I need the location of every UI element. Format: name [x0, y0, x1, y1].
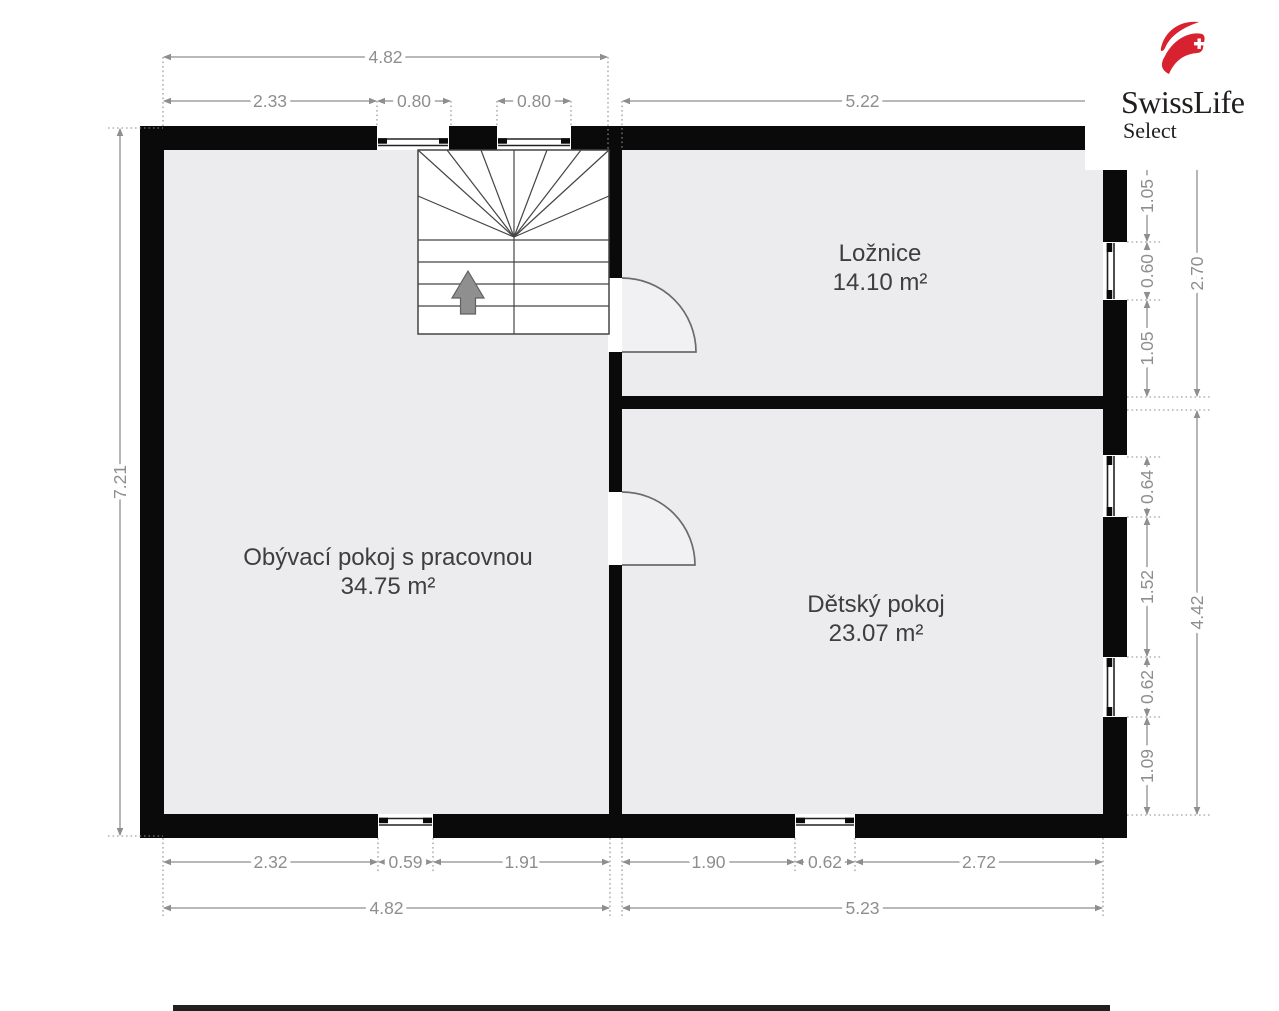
dimension-arrowhead [855, 859, 863, 866]
dimension-label: 0.60 [1137, 254, 1157, 288]
dimension-arrowhead [1194, 807, 1201, 815]
dimension-arrowhead [1194, 389, 1201, 397]
logo-sub-text: Select [1123, 118, 1177, 144]
dimension-arrowhead [497, 98, 505, 105]
dimension-label: 1.52 [1137, 570, 1157, 604]
dimension-label: 0.59 [388, 852, 422, 872]
swisslife-logo: SwissLife Select [1085, 0, 1279, 170]
wall [622, 396, 1103, 409]
wall [609, 565, 622, 814]
dimension-label: 2.33 [253, 91, 287, 111]
window-cap [1107, 658, 1113, 667]
dimension-arrowhead [1144, 657, 1151, 665]
window-cap [561, 138, 570, 144]
dimension-arrowhead [117, 828, 124, 836]
dimension-arrowhead [1144, 234, 1151, 242]
dimension-arrowhead [163, 98, 171, 105]
window-cap [796, 818, 805, 824]
dimension-arrowhead [425, 859, 433, 866]
dimension-arrowhead [1144, 292, 1151, 300]
dimension-label: 1.05 [1137, 179, 1157, 213]
dimension-label: 2.32 [253, 852, 287, 872]
dimension-arrowhead [1144, 517, 1151, 525]
window-opening [497, 126, 571, 150]
dimension-arrowhead [1194, 410, 1201, 418]
dimension-arrowhead [369, 98, 377, 105]
window-opening [1103, 455, 1127, 517]
swisslife-logo-icon [1155, 18, 1209, 80]
dimension-label: 0.62 [808, 852, 842, 872]
door-opening [608, 492, 623, 565]
floorplan-page: 4.822.330.800.805.227.211.050.601.050.64… [0, 0, 1279, 1011]
dimension-label: 5.22 [845, 91, 879, 111]
dimension-arrowhead [378, 859, 386, 866]
dimension-arrowhead [1144, 807, 1151, 815]
dimension-arrowhead [1144, 242, 1151, 250]
dimension-arrowhead [602, 859, 610, 866]
dimension-label: 1.90 [691, 852, 725, 872]
room-area: 14.10 m² [833, 269, 928, 296]
dimension-arrowhead [1144, 709, 1151, 717]
window-cap [423, 818, 432, 824]
room-name: Ložnice [839, 240, 922, 267]
dimension-label: 0.62 [1137, 670, 1157, 704]
window-cap [439, 138, 448, 144]
dimension-arrowhead [163, 859, 171, 866]
dimension-arrowhead [1095, 859, 1103, 866]
dimension-arrowhead [370, 859, 378, 866]
window-opening [1103, 657, 1127, 717]
dimension-label: 4.42 [1187, 595, 1207, 629]
window-opening [377, 126, 449, 150]
dimension-label: 0.64 [1137, 470, 1157, 504]
dimension-arrowhead [1095, 905, 1103, 912]
dimension-label: 4.82 [368, 47, 402, 67]
dimension-arrowhead [622, 905, 630, 912]
dimension-arrowhead [622, 98, 630, 105]
wall [609, 150, 622, 278]
dimension-arrowhead [163, 905, 171, 912]
dimension-arrowhead [602, 905, 610, 912]
dimension-label: 0.80 [517, 91, 551, 111]
dimension-label: 0.80 [397, 91, 431, 111]
dimension-arrowhead [1144, 509, 1151, 517]
dimension-arrowhead [1144, 457, 1151, 465]
room-name: Dětský pokoj [807, 591, 944, 618]
window-opening [1103, 242, 1127, 300]
room-name: Obývací pokoj s pracovnou [243, 544, 533, 571]
dimension-arrowhead [787, 859, 795, 866]
dimension-arrowhead [1144, 649, 1151, 657]
window-cap [379, 818, 388, 824]
floor [164, 150, 1103, 814]
dimension-label: 1.09 [1137, 749, 1157, 783]
dimension-arrowhead [377, 98, 385, 105]
window-cap [378, 138, 387, 144]
dimension-arrowhead [600, 54, 608, 61]
dimension-arrowhead [163, 54, 171, 61]
dimension-arrowhead [622, 859, 630, 866]
window-cap [1107, 707, 1113, 716]
dimension-arrowhead [443, 98, 451, 105]
window-cap [498, 138, 507, 144]
wall [140, 126, 164, 838]
dimension-label: 7.21 [110, 465, 130, 499]
door-opening [608, 278, 623, 352]
adjacent-plan-edge [173, 1005, 1110, 1011]
wall [140, 126, 1127, 150]
dimension-label: 4.82 [369, 898, 403, 918]
dimension-arrowhead [1144, 717, 1151, 725]
dimension-label: 2.70 [1187, 256, 1207, 290]
dimension-arrowhead [117, 128, 124, 136]
dimension-label: 2.72 [962, 852, 996, 872]
dimension-label: 5.23 [845, 898, 879, 918]
dimension-arrowhead [433, 859, 441, 866]
window-cap [1107, 290, 1113, 299]
window-cap [1107, 507, 1113, 516]
dimension-arrowhead [1144, 300, 1151, 308]
window-cap [1107, 456, 1113, 465]
logo-brand-text: SwissLife [1121, 84, 1279, 121]
window-cap [1107, 243, 1113, 252]
dimension-arrowhead [847, 859, 855, 866]
window-opening [795, 814, 855, 838]
wall [140, 814, 1127, 838]
dimension-arrowhead [1144, 389, 1151, 397]
room-area: 34.75 m² [341, 573, 436, 600]
dimension-arrowhead [795, 859, 803, 866]
window-cap [845, 818, 854, 824]
dimension-label: 1.05 [1137, 331, 1157, 365]
dimension-label: 1.91 [504, 852, 538, 872]
dimension-arrowhead [563, 98, 571, 105]
window-opening [378, 814, 433, 838]
wall [609, 352, 622, 492]
room-area: 23.07 m² [829, 620, 924, 647]
